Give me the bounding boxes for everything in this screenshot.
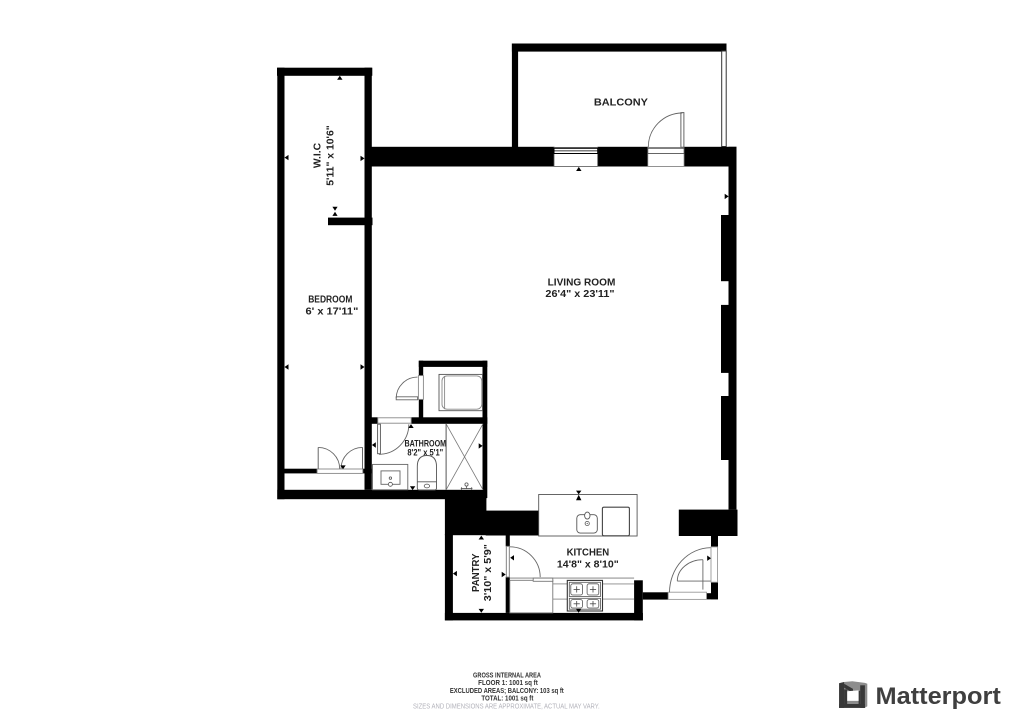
svg-text:SIZES AND DIMENSIONS ARE APPRO: SIZES AND DIMENSIONS ARE APPROXIMATE, AC…	[413, 702, 600, 711]
svg-text:KITCHEN: KITCHEN	[567, 548, 610, 559]
svg-text:EXCLUDED AREAS; BALCONY: 103 s: EXCLUDED AREAS; BALCONY: 103 sq ft	[450, 688, 564, 695]
svg-text:6' x 17'11": 6' x 17'11"	[306, 306, 359, 317]
svg-text:LIVING ROOM: LIVING ROOM	[548, 277, 616, 288]
svg-text:5'11" x 10'6": 5'11" x 10'6"	[326, 125, 337, 186]
svg-text:26'4" x 23'11": 26'4" x 23'11"	[545, 289, 614, 300]
svg-text:3'10" x 5'9": 3'10" x 5'9"	[483, 544, 494, 601]
svg-text:W.I.C: W.I.C	[313, 143, 324, 168]
svg-text:GROSS INTERNAL AREA: GROSS INTERNAL AREA	[473, 673, 541, 680]
svg-text:BEDROOM: BEDROOM	[308, 294, 352, 305]
svg-text:Matterport: Matterport	[876, 683, 1001, 710]
svg-text:14'8" x 8'10": 14'8" x 8'10"	[557, 559, 619, 570]
svg-text:BALCONY: BALCONY	[594, 98, 648, 109]
svg-text:PANTRY: PANTRY	[471, 553, 482, 592]
svg-text:FLOOR 1: 1001 sq ft: FLOOR 1: 1001 sq ft	[478, 680, 538, 687]
